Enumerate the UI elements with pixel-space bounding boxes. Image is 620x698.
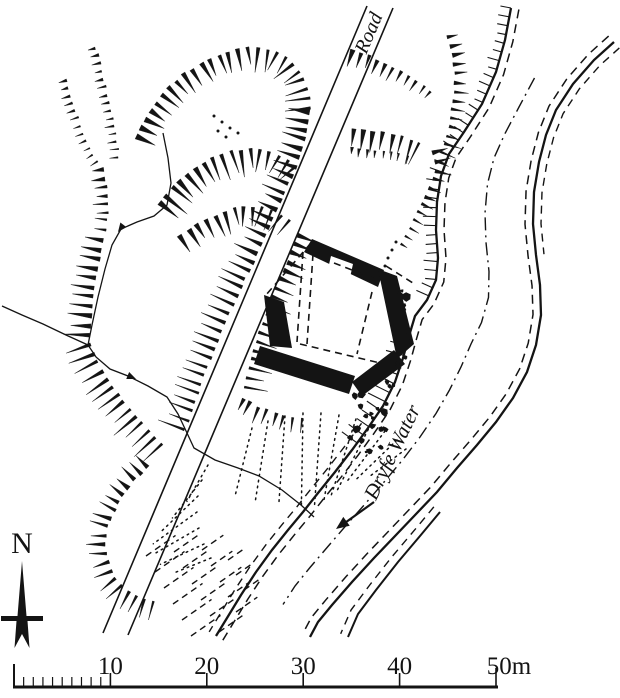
east-terrace-line	[348, 512, 440, 637]
road-edge-east	[128, 8, 393, 635]
castle-ruin	[254, 239, 414, 396]
flow-arrow-shaft	[342, 502, 374, 525]
castle-wall	[264, 295, 292, 348]
hachure-chain	[135, 47, 310, 146]
hachure-chain	[91, 167, 108, 231]
archaeological-site-plan: Road Dryfe Water N 1020304050m	[0, 0, 620, 698]
hachure-chain	[88, 47, 119, 158]
north-label: N	[11, 527, 33, 560]
north-arrow	[1, 561, 43, 648]
scale-tick-label: 30	[291, 653, 316, 680]
north-arrow-glyph	[1, 561, 43, 648]
conjectural-wall-dashed	[307, 254, 313, 344]
scale-tick-label: 50m	[487, 653, 532, 680]
hachure-chain	[347, 49, 431, 98]
conjectural-wall-dashed	[357, 292, 372, 354]
conjectural-wall-dashed	[300, 344, 380, 363]
site-plan-canvas: Road Dryfe Water N 1020304050m	[0, 0, 620, 698]
hachure-chain	[59, 79, 98, 166]
hachure-chain	[351, 147, 409, 164]
scale-tick-label: 10	[98, 653, 123, 680]
castle-wall	[378, 269, 414, 359]
hachure-chain	[351, 129, 420, 165]
road	[103, 6, 393, 635]
road-edge-west	[103, 6, 367, 633]
scale-bar: 1020304050m	[13, 653, 532, 687]
hachure-chain	[63, 237, 163, 462]
hachure-chain	[238, 398, 303, 433]
scale-tick-label: 40	[387, 653, 412, 680]
east-outer-dashes	[541, 48, 619, 254]
scale-tick-label: 20	[194, 653, 219, 680]
east-bank-dashes	[303, 36, 609, 633]
